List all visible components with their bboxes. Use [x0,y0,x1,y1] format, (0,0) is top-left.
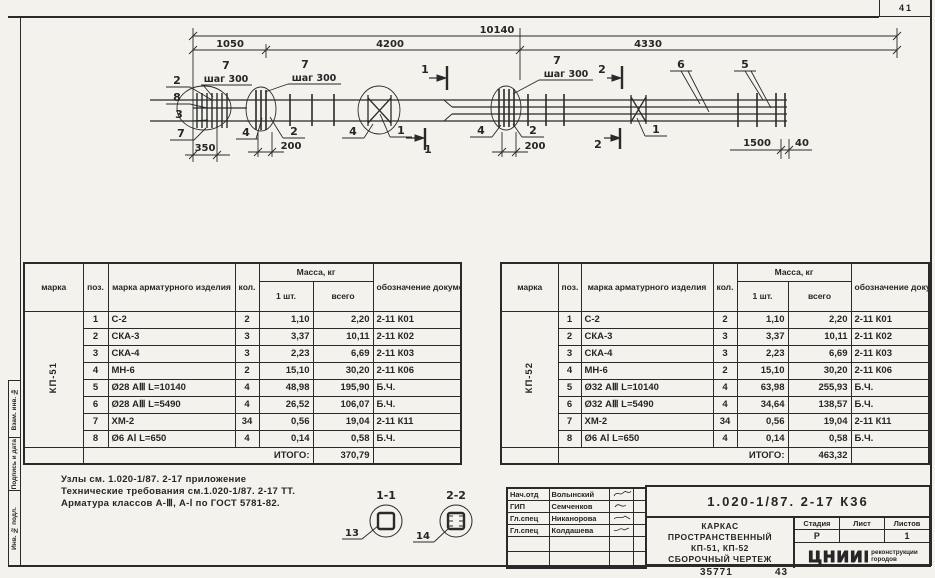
footer-number-right: 43 [775,567,788,578]
col-header-marka: марка [501,263,558,311]
cell-kol: 4 [713,396,737,413]
footer-number-left: 35771 [700,567,733,578]
pitch-label-1: шаг 300 [204,74,249,85]
mark-cell: КП-51 [24,311,83,447]
cell-empty [24,447,83,464]
cell-kol: 4 [235,396,259,413]
table-row: 6Ø32 АⅢ L=5490434,64138,57Б.Ч. [501,396,929,413]
stage-value: Р [795,530,839,542]
cell-poz: 6 [83,396,108,413]
col-header-doc: обозначение документа [851,263,929,311]
cell-total: 30,20 [788,362,851,379]
signature-cell [609,488,633,501]
table-row: 8Ø6 АⅠ L=65040,140,58Б.Ч. [501,430,929,447]
cell-one: 0,56 [259,413,313,430]
table-row: 4МН-6215,1030,202-11 К06 [24,362,461,379]
sheet-col: Лист [840,518,885,542]
dim-1500: 1500 [743,138,771,149]
pitch-labels: шаг 300 шаг 300 шаг 300 [204,69,589,85]
col-header-izdelie: марка арматурного изделия [108,263,235,311]
cell-one: 0,14 [737,430,788,447]
cell-total: 0,58 [313,430,373,447]
pos-callout-6: 6 [677,58,685,71]
col-header-doc: обозначение документа [373,263,461,311]
sheets-col: Листов 1 [885,518,929,542]
section-2-bottom: 2 [594,138,602,151]
stamp-cell-vzam: Взам. инв. № [8,380,20,438]
cell-kol: 3 [235,345,259,362]
detail-pos-14: 14 [416,531,430,542]
col-header-kol: кол. [713,263,737,311]
cell-kol: 3 [235,328,259,345]
empty-row [507,537,646,552]
table-row: 7ХМ-2340,5619,042-11 К11 [24,413,461,430]
mark-cell: КП-52 [501,311,558,447]
cell-name: С-2 [108,311,235,328]
signer-row: Гл.спец Никанорова [507,513,646,525]
document-number: 1.020-1/87. 2-17 К36 [647,487,929,518]
detail-pos-13: 13 [345,528,359,539]
table-row: 7ХМ-2340,5619,042-11 К11 [501,413,929,430]
signature-cell [609,513,633,525]
detail-title-1-1: 1-1 [376,489,396,502]
table-row: 5Ø32 АⅢ L=10140463,98255,93Б.Ч. [501,379,929,396]
cell-kol: 34 [713,413,737,430]
pos-callout-7b: 7 [222,59,230,72]
signer-role: Гл.спец [507,513,549,525]
cell-kol: 4 [713,379,737,396]
cell-doc: 2-11 К11 [373,413,461,430]
cell-doc: 2-11 К06 [851,362,929,379]
org-subtitle: реконструкции городов [871,549,918,563]
cell-kol: 2 [713,362,737,379]
cell-total: 138,57 [788,396,851,413]
signer-role: Гл.спец [507,525,549,537]
cell-one: 0,56 [737,413,788,430]
cell-doc: 2-11 К02 [851,328,929,345]
pitch-label-3: шаг 300 [544,69,589,80]
cell-one: 1,10 [737,311,788,328]
org-logo: ЦНИИП [806,546,868,566]
sheets-value: 1 [885,530,929,542]
section-2-top: 2 [598,63,606,76]
cell-name: ХМ-2 [581,413,713,430]
itogo-value: 463,32 [788,447,851,464]
cell-total: 6,69 [788,345,851,362]
dim-seg2: 4200 [376,39,404,50]
cell-doc: 2-11 К11 [851,413,929,430]
cell-poz: 7 [83,413,108,430]
pos-callout-2: 2 [173,74,181,87]
cell-total: 10,11 [788,328,851,345]
table-row: 3СКА-432,236,692-11 К03 [501,345,929,362]
cell-kol: 34 [235,413,259,430]
signer-name: Семченков [549,501,609,513]
cell-name: МН-6 [581,362,713,379]
pos-callout-1a: 1 [397,124,405,137]
cell-total: 106,07 [313,396,373,413]
cell-doc: 2-11 К01 [373,311,461,328]
cell-doc: Б.Ч. [373,396,461,413]
cell-one: 2,23 [737,345,788,362]
dim-200b: 200 [525,141,546,152]
stage-col: Стадия Р [795,518,840,542]
cell-poz: 8 [558,430,581,447]
cell-kol: 4 [235,430,259,447]
drawing-title: КАРКАС ПРОСТРАНСТВЕННЫЙ КП-51, КП-52 СБО… [647,518,795,568]
cell-kol: 2 [235,311,259,328]
table-row: 5Ø28 АⅢ L=10140448,98195,90Б.Ч. [24,379,461,396]
cell-doc: 2-11 К03 [851,345,929,362]
note-line-3: Арматура классов А-Ⅲ, А-Ⅰ по ГОСТ 5781-8… [61,498,295,510]
cell-poz: 6 [558,396,581,413]
cell-empty [373,447,461,464]
assembly-drawing: 10140 1050 4200 4330 350 200 200 1500 40 [0,0,935,260]
cell-name: Ø28 АⅢ L=5490 [108,396,235,413]
cell-one: 2,23 [259,345,313,362]
cell-name: СКА-4 [581,345,713,362]
dim-200a: 200 [281,141,302,152]
cell-total: 6,69 [313,345,373,362]
dim-350: 350 [195,143,216,154]
signer-name: Никанорова [549,513,609,525]
cell-one: 63,98 [737,379,788,396]
cell-poz: 1 [83,311,108,328]
col-header-total: всего [313,281,373,311]
signature-table: Нач.отд Волынский ГИП Семченков Гл.спец … [506,487,647,569]
cell-one: 15,10 [737,362,788,379]
cell-poz: 5 [83,379,108,396]
title-block: 1.020-1/87. 2-17 К36 КАРКАС ПРОСТРАНСТВЕ… [645,485,931,566]
cell-total: 0,58 [788,430,851,447]
table-row: 4МН-6215,1030,202-11 К06 [501,362,929,379]
cell-name: Ø32 АⅢ L=5490 [581,396,713,413]
cell-kol: 3 [713,345,737,362]
table-row: КП-51 1С-221,102,202-11 К01 [24,311,461,328]
table-row: 2СКА-333,3710,112-11 К02 [24,328,461,345]
cell-name: Ø32 АⅢ L=10140 [581,379,713,396]
cell-name: Ø28 АⅢ L=10140 [108,379,235,396]
signer-role: ГИП [507,501,549,513]
cell-total: 19,04 [788,413,851,430]
pitch-label-2: шаг 300 [292,73,337,84]
cell-name: ХМ-2 [108,413,235,430]
cell-one: 34,64 [737,396,788,413]
cell-one: 48,98 [259,379,313,396]
pos-callout-7d: 7 [553,54,561,67]
detail-title-2-2: 2-2 [446,489,466,502]
table-row: 8Ø6 АⅠ L=65040,140,58Б.Ч. [24,430,461,447]
cell-total: 255,93 [788,379,851,396]
cell-poz: 4 [83,362,108,379]
cell-poz: 2 [83,328,108,345]
beam-bars [150,100,787,121]
spec-table-kp51: марка поз. марка арматурного изделия кол… [23,262,462,465]
org-logo-text: ЦНИИП [808,548,868,566]
cell-total: 2,20 [313,311,373,328]
col-header-marka: марка [24,263,83,311]
cell-doc: Б.Ч. [373,430,461,447]
title-line-1: КАРКАС [701,521,738,532]
cell-one: 0,14 [259,430,313,447]
cell-one: 3,37 [737,328,788,345]
cell-poz: 2 [558,328,581,345]
title-line-3: КП-51, КП-52 [691,543,749,554]
cell-name: МН-6 [108,362,235,379]
section-details: 1-1 2-2 13 14 [330,480,510,565]
note-line-2: Технические требования см.1.020-1/87. 2-… [61,486,295,498]
pos-callout-4a: 4 [242,126,250,139]
signature-icon [612,489,632,498]
sheet-label: Лист [840,518,884,530]
signer-name: Волынский [549,488,609,501]
itogo-value: 370,79 [313,447,373,464]
organization: ЦНИИП реконструкции городов [795,543,929,568]
col-header-massa: Масса, кг [259,263,373,281]
cell-poz: 3 [83,345,108,362]
stamp-text: Взам. инв. № [11,388,18,430]
cell-kol: 4 [235,379,259,396]
title-line-4: СБОРОЧНЫЙ ЧЕРТЕЖ [668,554,772,565]
totals-row: ИТОГО: 463,32 [501,447,929,464]
signature-icon [612,525,632,534]
cell-kol: 2 [235,362,259,379]
cell-doc: Б.Ч. [373,379,461,396]
cell-poz: 4 [558,362,581,379]
spec-table-kp52: марка поз. марка арматурного изделия кол… [500,262,930,465]
cell-one: 26,52 [259,396,313,413]
cell-poz: 5 [558,379,581,396]
cell-poz: 1 [558,311,581,328]
cell-name: Ø6 АⅠ L=650 [581,430,713,447]
stamp-cell-podpis: Подпись и дата [8,437,20,491]
col-header-total: всего [788,281,851,311]
pos-callout-1b: 1 [652,123,660,136]
table-row: 2СКА-333,3710,112-11 К02 [501,328,929,345]
cell-name: Ø6 АⅠ L=650 [108,430,235,447]
cell-total: 19,04 [313,413,373,430]
col-header-izdelie: марка арматурного изделия [581,263,713,311]
cell-total: 2,20 [788,311,851,328]
table-row: КП-52 1С-221,102,202-11 К01 [501,311,929,328]
cell-doc: Б.Ч. [851,396,929,413]
stamp-text: Инв. № подл. [11,507,18,550]
cell-name: СКА-4 [108,345,235,362]
itogo-label: ИТОГО: [83,447,313,464]
signer-name: Колдашева [549,525,609,537]
org-subtitle-line1: реконструкции [871,549,918,556]
cell-doc: 2-11 К06 [373,362,461,379]
section-1-bottom: 1 [424,143,432,156]
pos-callout-4b: 4 [349,125,357,138]
cell-doc: Б.Ч. [851,430,929,447]
drawing-sheet: 41 Взам. инв. № Подпись и дата Инв. № по… [0,0,935,574]
org-subtitle-line2: городов [871,556,918,563]
cell-doc: Б.Ч. [851,379,929,396]
cell-doc: 2-11 К02 [373,328,461,345]
general-notes: Узлы см. 1.020-1/87. 2-17 приложение Тех… [61,474,295,510]
pos-callout-2b: 2 [529,124,537,137]
col-header-kol: кол. [235,263,259,311]
signature-cell [609,501,633,513]
signer-row: Нач.отд Волынский [507,488,646,501]
cell-name: СКА-3 [581,328,713,345]
stamp-text: Подпись и дата [11,439,18,489]
dim-seg3: 4330 [634,39,662,50]
cell-name: СКА-3 [108,328,235,345]
cell-name: С-2 [581,311,713,328]
cell-empty [851,447,929,464]
table-row: 6Ø28 АⅢ L=5490426,52106,07Б.Ч. [24,396,461,413]
note-line-1: Узлы см. 1.020-1/87. 2-17 приложение [61,474,295,486]
cell-one: 15,10 [259,362,313,379]
cell-poz: 7 [558,413,581,430]
pos-callout-7: 7 [177,127,185,140]
signer-row: Гл.спец Колдашева [507,525,646,537]
mark-label: КП-52 [524,362,535,393]
stamp-cell-inv: Инв. № подл. [8,490,20,566]
cell-total: 10,11 [313,328,373,345]
dim-seg1: 1050 [216,39,244,50]
cell-doc: 2-11 К03 [373,345,461,362]
signer-row: ГИП Семченков [507,501,646,513]
col-header-poz: поз. [83,263,108,311]
cell-doc: 2-11 К01 [851,311,929,328]
col-header-one: 1 шт. [737,281,788,311]
cell-one: 3,37 [259,328,313,345]
signature-cell [609,525,633,537]
signature-icon [612,501,632,510]
pos-callout-7c: 7 [301,58,309,71]
cell-kol: 4 [713,430,737,447]
signer-role: Нач.отд [507,488,549,501]
stage-grid: Стадия Р Лист Листов 1 [795,518,929,543]
table-row: 3СКА-432,236,692-11 К03 [24,345,461,362]
pos-callout-2a: 2 [290,125,298,138]
cell-empty [501,447,558,464]
sheet-value [840,530,884,542]
pos-callout-5: 5 [741,58,749,71]
cell-kol: 2 [713,311,737,328]
totals-row: ИТОГО: 370,79 [24,447,461,464]
cell-one: 1,10 [259,311,313,328]
cell-total: 195,90 [313,379,373,396]
sheets-label: Листов [885,518,929,530]
cell-kol: 3 [713,328,737,345]
pos-callout-3: 3 [175,108,183,121]
itogo-label: ИТОГО: [558,447,788,464]
cell-total: 30,20 [313,362,373,379]
col-header-one: 1 шт. [259,281,313,311]
cell-poz: 8 [83,430,108,447]
pos-callout-8: 8 [173,91,181,104]
empty-row [507,552,646,568]
mark-label: КП-51 [48,362,59,393]
section-1-top: 1 [421,63,429,76]
signature-icon [612,513,632,522]
dim-overall: 10140 [480,25,515,36]
col-header-poz: поз. [558,263,581,311]
dim-40: 40 [795,138,809,149]
pos-callout-4c: 4 [477,124,485,137]
cell-poz: 3 [558,345,581,362]
stage-label: Стадия [795,518,839,530]
title-line-2: ПРОСТРАНСТВЕННЫЙ [668,532,772,543]
col-header-massa: Масса, кг [737,263,851,281]
